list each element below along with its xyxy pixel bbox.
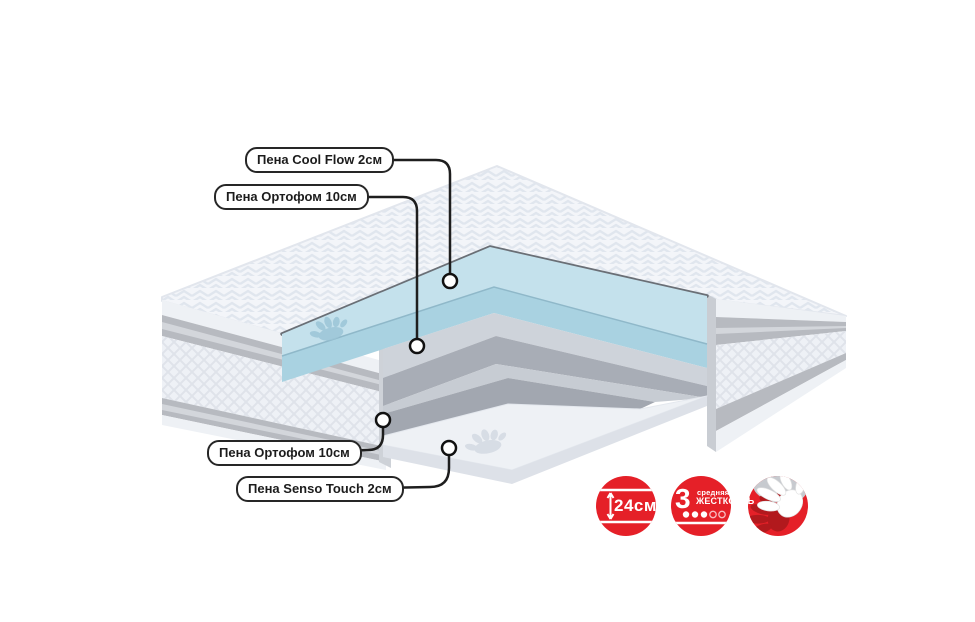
marker-cool-flow: [443, 274, 457, 288]
marker-senso-touch: [442, 441, 456, 455]
mattress-diagram: Пена Cool Flow 2см Пена Ортофом 10см Пен…: [0, 0, 975, 622]
badge-firmness-number: 3: [675, 486, 691, 512]
right-cut-face: [707, 294, 716, 452]
marker-ortofoam-top: [410, 339, 424, 353]
badge-firmness-word-bottom: жесткость: [696, 496, 754, 506]
callout-label-ortofoam-bottom: Пена Ортофом 10см: [207, 440, 362, 466]
marker-ortofoam-bottom: [376, 413, 390, 427]
mattress-right-side: [707, 294, 846, 452]
mattress-illustration: [0, 0, 975, 622]
callout-label-senso-touch: Пена Senso Touch 2см: [236, 476, 404, 502]
callout-label-ortofoam-top: Пена Ортофом 10см: [214, 184, 369, 210]
callout-label-cool-flow: Пена Cool Flow 2см: [245, 147, 394, 173]
badge-height-value: 24см: [614, 496, 657, 516]
